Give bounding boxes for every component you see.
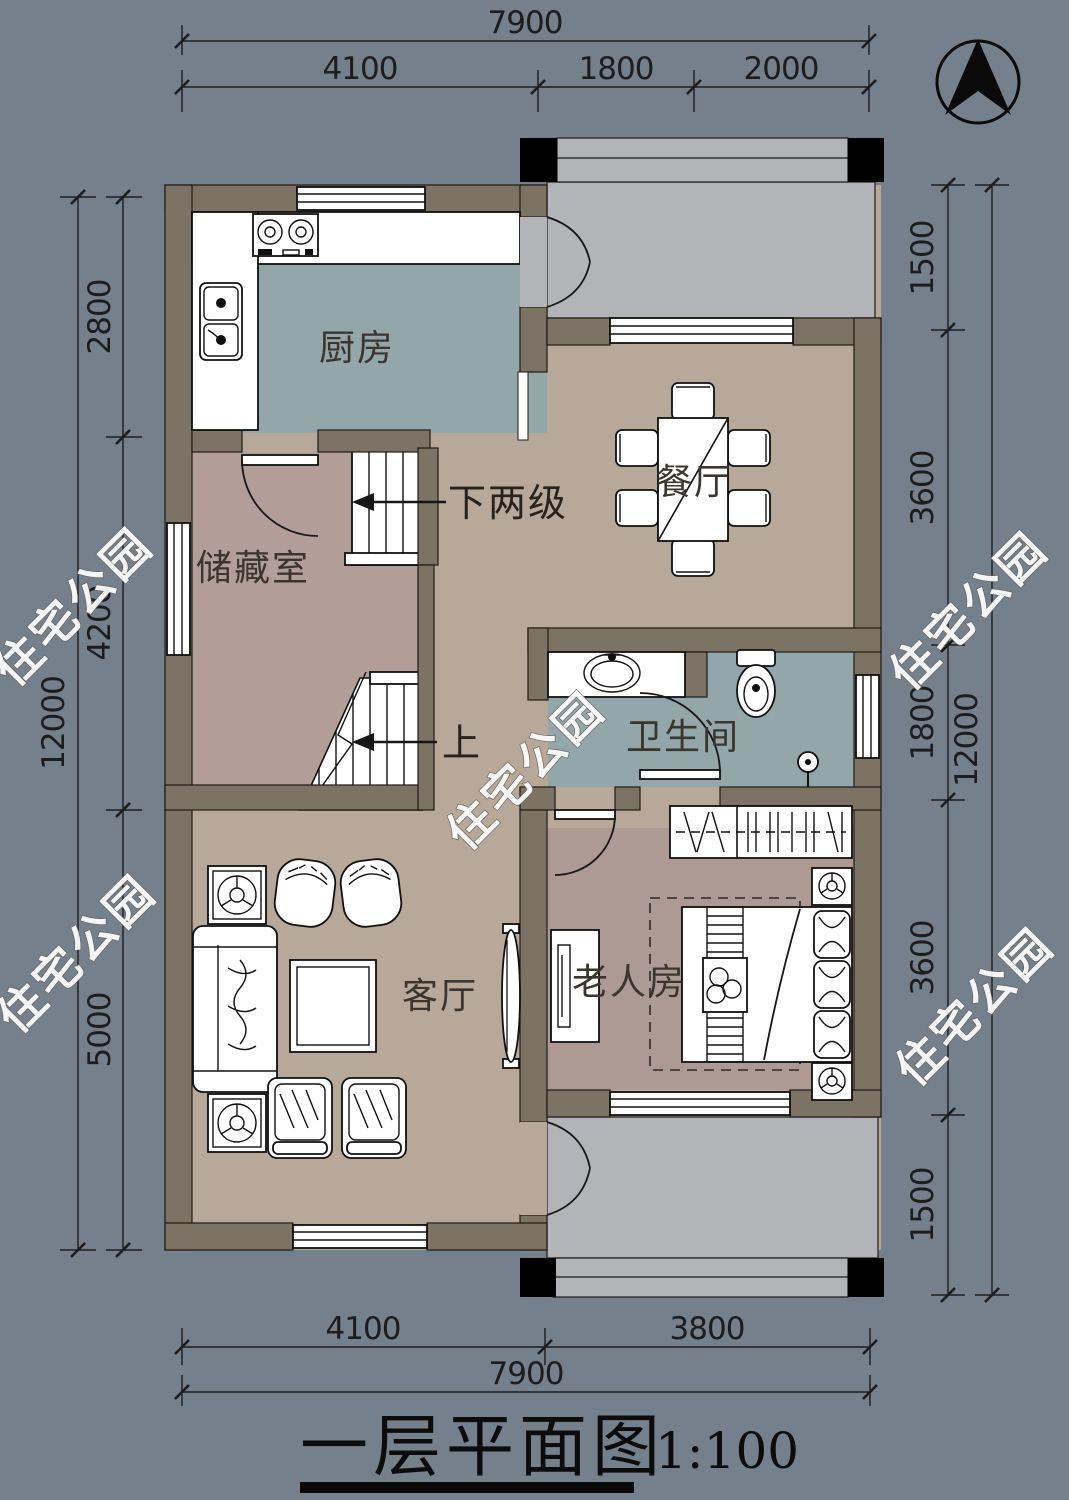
sofa bbox=[193, 926, 277, 1092]
title-underline bbox=[300, 1482, 634, 1493]
dining-window bbox=[610, 318, 793, 343]
sheet-scale: 1:100 bbox=[655, 1422, 799, 1480]
stove-icon bbox=[253, 214, 318, 256]
porch-door-opening bbox=[520, 217, 547, 307]
bathroom-label: 卫生间 bbox=[626, 717, 740, 758]
dim-right-total: 12000 bbox=[949, 693, 985, 787]
dim-top-seg0: 4100 bbox=[323, 51, 398, 87]
armchair-bottom-2 bbox=[342, 1078, 406, 1158]
storage-window bbox=[167, 523, 190, 655]
stairs-down-label: 下两级 bbox=[448, 481, 568, 525]
kitchen-window bbox=[297, 187, 425, 210]
floor-plan-sheet: 厨房 餐厅 储藏室 卫生间 客厅 老人房 下两级 上 7900 4100 180… bbox=[0, 0, 1069, 1500]
wardrobe bbox=[670, 806, 852, 858]
sheet-title: 一层平面图 bbox=[300, 1408, 665, 1487]
dim-right-seg2: 1800 bbox=[905, 686, 941, 761]
kitchen-sink-icon bbox=[200, 283, 242, 360]
bedroom-door-leaf bbox=[555, 810, 615, 819]
dim-right-seg3: 3600 bbox=[905, 921, 941, 996]
dim-right-seg4: 1500 bbox=[905, 1168, 941, 1243]
kitchen-label: 厨房 bbox=[319, 328, 395, 369]
pillows bbox=[814, 911, 850, 1058]
dim-bottom-seg1: 3800 bbox=[670, 1311, 745, 1347]
coffee-table bbox=[290, 960, 376, 1052]
armchair-top-1 bbox=[272, 857, 338, 930]
nightstand-bottom bbox=[812, 1063, 852, 1100]
armchair-top-2 bbox=[338, 857, 404, 930]
dim-right-seg0: 1500 bbox=[905, 221, 941, 296]
living-window bbox=[293, 1225, 427, 1248]
stairs-up-label: 上 bbox=[442, 721, 482, 765]
bedroom-window bbox=[610, 1092, 790, 1115]
dim-left-seg0: 2800 bbox=[82, 280, 118, 355]
north-arrow-icon bbox=[937, 39, 1019, 123]
living-label: 客厅 bbox=[402, 976, 478, 1017]
bedroom-label: 老人房 bbox=[572, 962, 686, 1003]
toilet-icon bbox=[737, 650, 775, 717]
bathroom-window bbox=[856, 675, 879, 758]
dim-left-total: 12000 bbox=[36, 676, 72, 770]
plant-box-bottom bbox=[208, 1094, 266, 1152]
dim-left-seg2: 5000 bbox=[82, 993, 118, 1068]
armchair-bottom-1 bbox=[268, 1078, 332, 1158]
dim-bottom-total: 7900 bbox=[489, 1356, 564, 1392]
floor-plan-drawing: 厨房 餐厅 储藏室 卫生间 客厅 老人房 下两级 上 7900 4100 180… bbox=[0, 0, 1069, 1500]
dim-top-seg1: 1800 bbox=[579, 51, 654, 87]
plant-box-top bbox=[208, 866, 266, 924]
dining-label: 餐厅 bbox=[656, 462, 732, 503]
dim-top-seg2: 2000 bbox=[744, 51, 819, 87]
entry-door-opening bbox=[520, 1122, 547, 1215]
watermark-text: 住宅公园 bbox=[0, 517, 163, 697]
storage-door-leaf bbox=[242, 455, 318, 465]
living-tv-icon bbox=[502, 924, 520, 1068]
watermark-text: 住宅公园 bbox=[879, 521, 1059, 701]
bathroom-door-leaf bbox=[640, 770, 720, 779]
stair-upper-two-steps bbox=[345, 448, 428, 565]
dim-top-total: 7900 bbox=[488, 5, 563, 41]
nightstand-top bbox=[812, 868, 852, 905]
storage-label: 储藏室 bbox=[196, 548, 310, 589]
dim-bottom-seg0: 4100 bbox=[326, 1311, 401, 1347]
dim-right-seg1: 3600 bbox=[905, 451, 941, 526]
